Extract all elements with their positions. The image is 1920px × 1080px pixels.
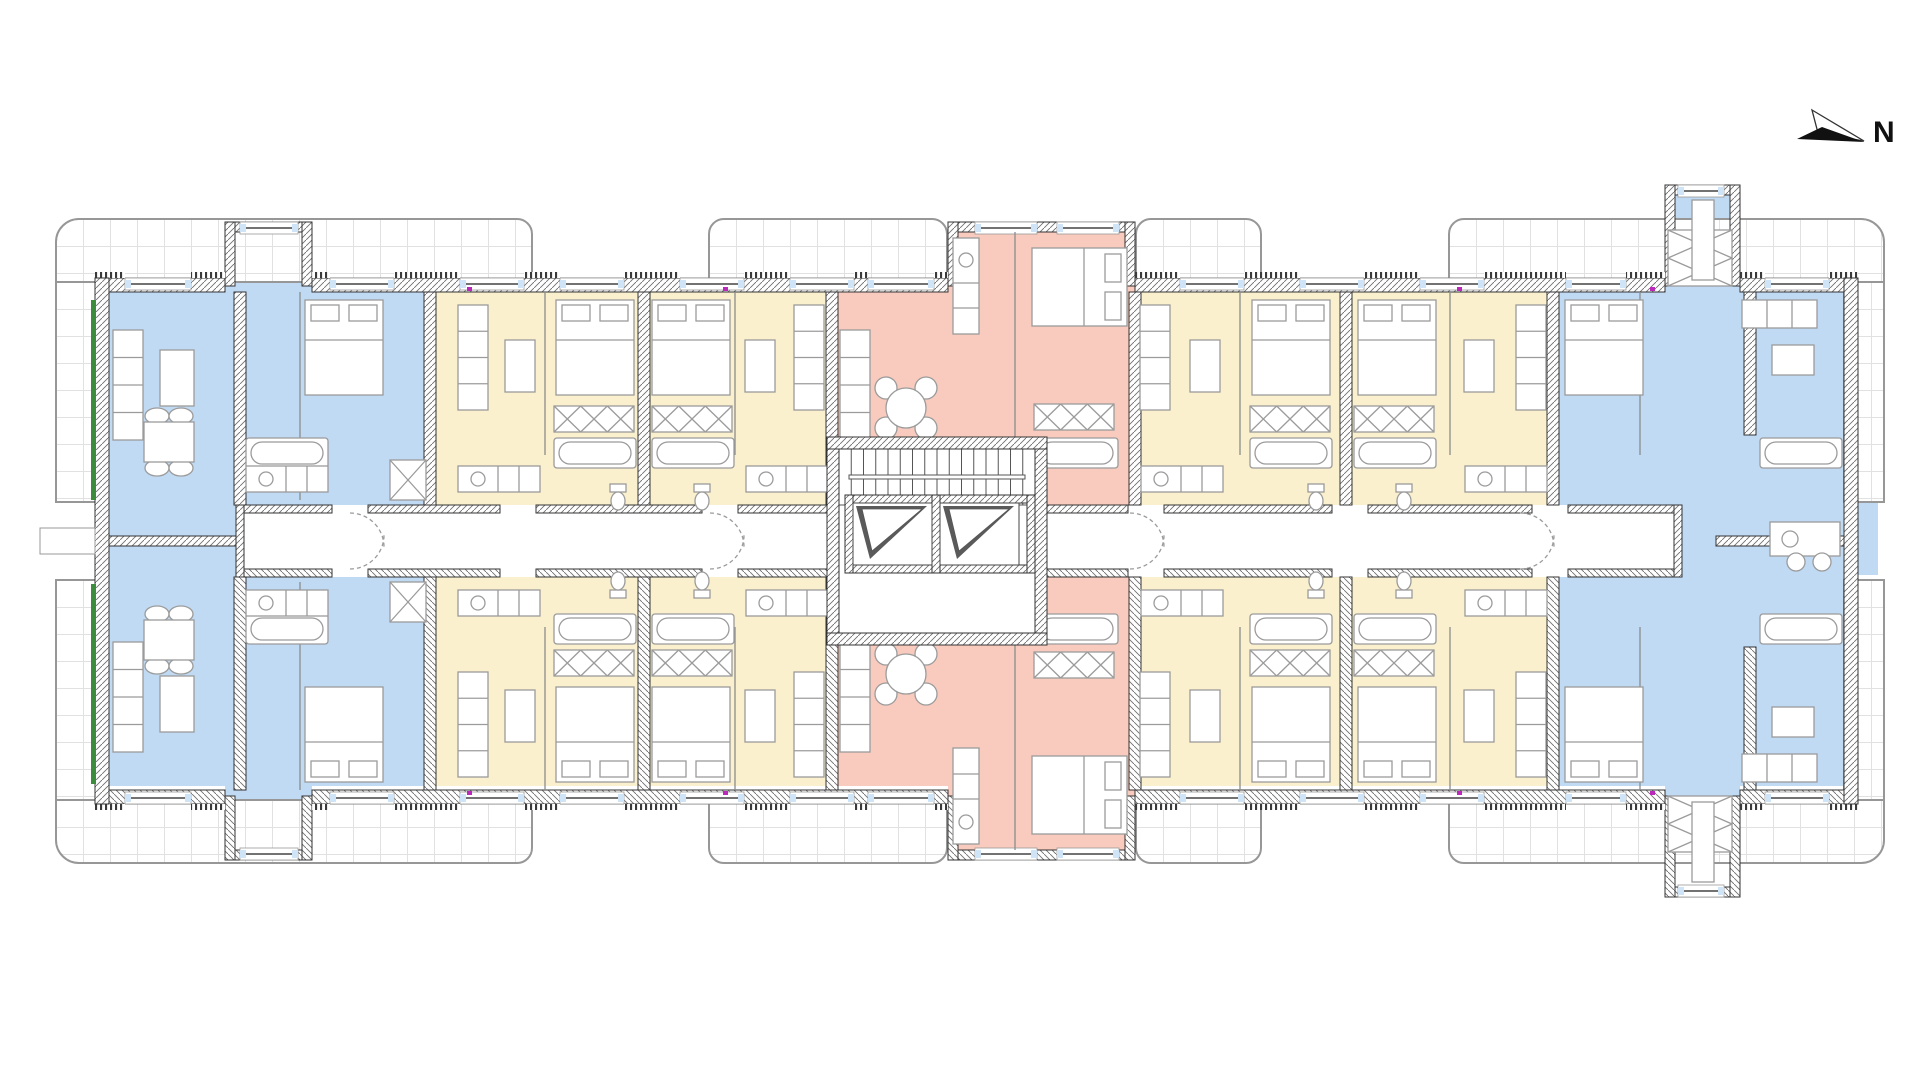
terrace-bottom-mid-right bbox=[1135, 799, 1262, 864]
unit-blue-left-bottom bbox=[240, 577, 430, 786]
terrace-left-upper bbox=[55, 281, 97, 503]
terrace-left-lower bbox=[55, 579, 97, 801]
north-arrow-icon bbox=[1797, 110, 1864, 142]
unit-blue-right-bottom bbox=[1553, 577, 1844, 786]
unit-yellow-right-top bbox=[1135, 292, 1553, 505]
entrance-canopy bbox=[40, 528, 95, 554]
unit-blue-left-column bbox=[109, 292, 240, 786]
terrace-bottom-right bbox=[1448, 799, 1885, 864]
north-label: N bbox=[1873, 116, 1895, 150]
unit-blue-right-top bbox=[1553, 292, 1844, 505]
unit-blue-left-top bbox=[240, 292, 430, 505]
terrace-top-mid-left bbox=[708, 218, 948, 283]
terrace-bottom-left bbox=[55, 799, 533, 864]
terrace-right-lower bbox=[1843, 579, 1885, 801]
unit-yellow-left-top bbox=[430, 292, 832, 505]
terrace-top-mid-right bbox=[1135, 218, 1262, 283]
unit-yellow-left-bottom bbox=[430, 577, 832, 786]
unit-pink-top bbox=[832, 292, 1135, 505]
terrace-right-upper bbox=[1843, 281, 1885, 503]
terrace-bottom-mid-left bbox=[708, 799, 948, 864]
unit-blue-right-corridor-band bbox=[1682, 505, 1844, 577]
unit-pink-bottom bbox=[832, 577, 1135, 786]
unit-pink-protrusion-top bbox=[948, 228, 1135, 292]
elevator-shafts bbox=[853, 503, 1019, 565]
terrace-top-left bbox=[55, 218, 533, 283]
unit-pink-protrusion-bottom bbox=[948, 786, 1135, 852]
unit-yellow-right-bottom bbox=[1135, 577, 1553, 786]
plan-linework bbox=[0, 0, 1920, 1080]
floor-plan: N bbox=[0, 0, 1920, 1080]
terrace-top-right bbox=[1448, 218, 1885, 283]
